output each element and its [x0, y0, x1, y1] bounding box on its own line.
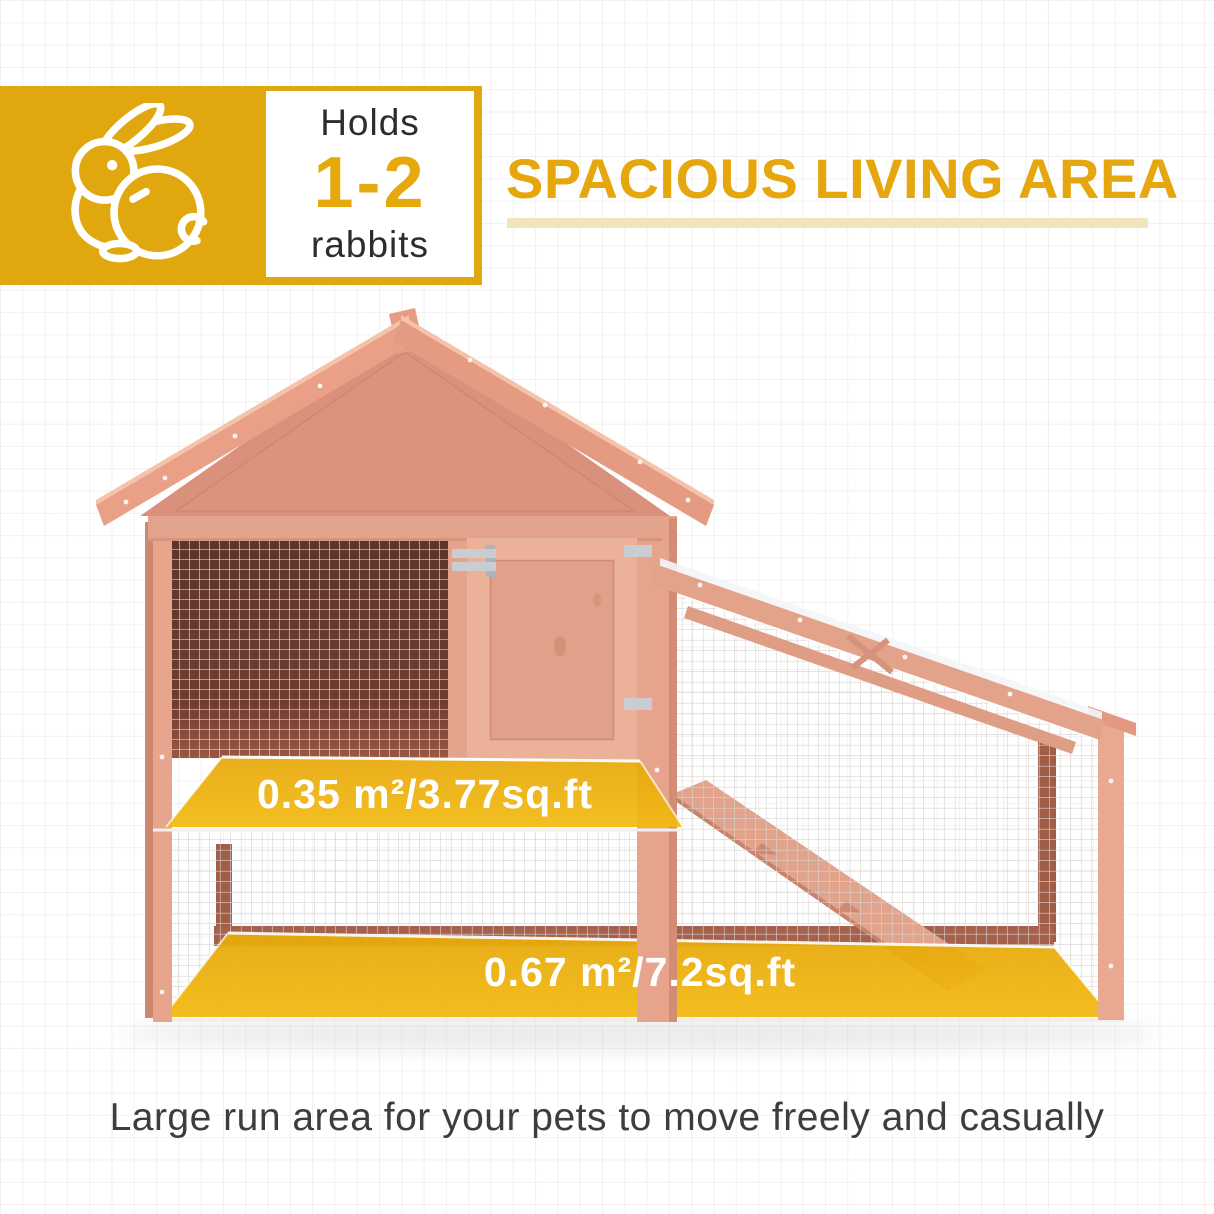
door-hinge-bottom: [624, 698, 652, 710]
house-door: [452, 538, 652, 762]
house-window: [172, 541, 467, 758]
capacity-value: 1-2: [313, 146, 426, 222]
door-hinge-top: [624, 545, 652, 557]
heading-underline: [507, 218, 1148, 228]
door-latch-bolt: [452, 549, 496, 558]
capacity-badge: Holds 1-2 rabbits: [0, 86, 482, 285]
ground-shadow: [120, 1017, 1160, 1051]
run-area-label: 0.67 m²/7.2sq.ft: [484, 949, 796, 995]
caption-text: Large run area for your pets to move fre…: [0, 1096, 1214, 1140]
upper-area-label: 0.35 m²/3.77sq.ft: [257, 771, 593, 817]
rabbit-icon: [0, 86, 262, 285]
capacity-line1: Holds: [320, 100, 420, 146]
house-roof: [96, 308, 714, 526]
page-title: SPACIOUS LIVING AREA: [506, 146, 1206, 211]
capacity-text-box: Holds 1-2 rabbits: [266, 91, 474, 277]
capacity-line2: rabbits: [311, 222, 429, 268]
